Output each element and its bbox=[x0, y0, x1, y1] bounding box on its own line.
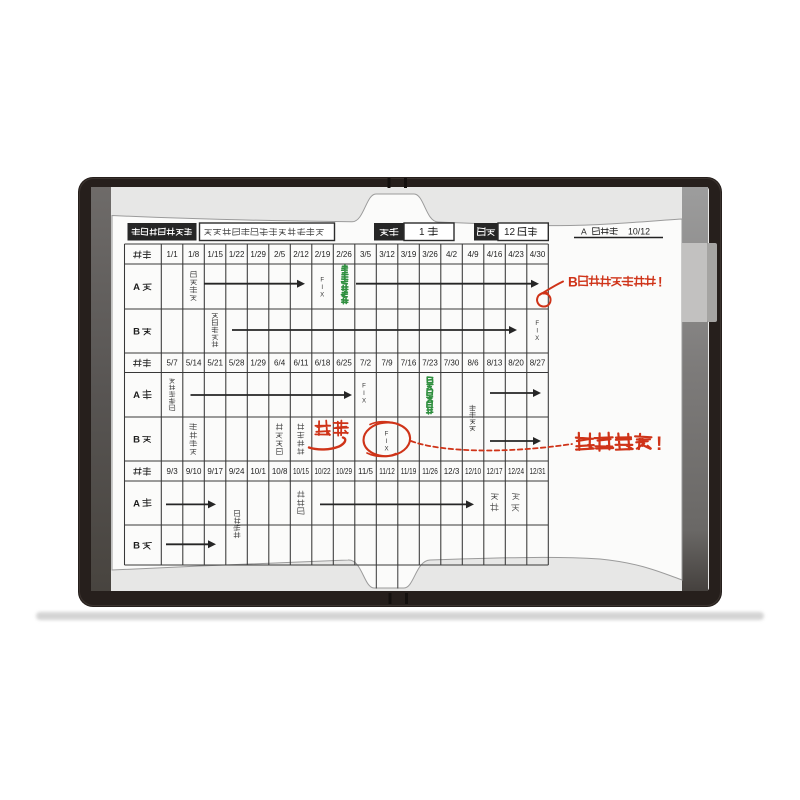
svg-text:10/15: 10/15 bbox=[293, 466, 309, 476]
svg-text:11/5: 11/5 bbox=[358, 467, 374, 476]
svg-text:6/18: 6/18 bbox=[315, 359, 331, 368]
svg-text:I: I bbox=[536, 327, 538, 334]
svg-text:2/12: 2/12 bbox=[293, 250, 309, 259]
svg-text:11/19: 11/19 bbox=[401, 466, 417, 476]
svg-text:6/4: 6/4 bbox=[274, 359, 286, 368]
svg-text:7/30: 7/30 bbox=[444, 359, 460, 368]
svg-text:12: 12 bbox=[504, 227, 516, 238]
svg-text:4/2: 4/2 bbox=[446, 250, 458, 259]
svg-text:A: A bbox=[581, 227, 587, 237]
svg-text:4/16: 4/16 bbox=[487, 250, 503, 259]
svg-text:1/8: 1/8 bbox=[188, 250, 200, 259]
svg-text:1: 1 bbox=[419, 227, 425, 238]
svg-text:3/19: 3/19 bbox=[401, 250, 417, 259]
svg-text:1/29: 1/29 bbox=[250, 359, 266, 368]
svg-text:3/12: 3/12 bbox=[379, 250, 395, 259]
svg-text:4/9: 4/9 bbox=[467, 250, 479, 259]
svg-text:9/10: 9/10 bbox=[186, 467, 202, 476]
svg-text:!: ! bbox=[658, 275, 663, 290]
svg-text:A: A bbox=[133, 390, 140, 401]
svg-text:2/26: 2/26 bbox=[336, 250, 352, 259]
svg-text:12/24: 12/24 bbox=[508, 466, 524, 476]
svg-text:9/24: 9/24 bbox=[229, 467, 245, 476]
svg-text:10/8: 10/8 bbox=[272, 467, 288, 476]
svg-text:12/3: 12/3 bbox=[444, 467, 460, 476]
svg-text:7/16: 7/16 bbox=[401, 359, 417, 368]
svg-text:7/9: 7/9 bbox=[381, 359, 393, 368]
svg-text:10/12: 10/12 bbox=[628, 227, 650, 237]
svg-text:8/6: 8/6 bbox=[467, 359, 479, 368]
svg-text:8/27: 8/27 bbox=[530, 359, 546, 368]
svg-text:5/7: 5/7 bbox=[167, 359, 179, 368]
svg-text:1/29: 1/29 bbox=[250, 250, 266, 259]
svg-text:I: I bbox=[321, 284, 323, 291]
svg-text:X: X bbox=[535, 335, 539, 342]
svg-text:12/10: 12/10 bbox=[465, 466, 481, 476]
svg-text:X: X bbox=[320, 291, 324, 298]
svg-text:F: F bbox=[385, 430, 389, 437]
svg-text:F: F bbox=[320, 276, 324, 283]
svg-text:5/21: 5/21 bbox=[207, 359, 223, 368]
svg-text:7/2: 7/2 bbox=[360, 359, 372, 368]
svg-text:2/19: 2/19 bbox=[315, 250, 331, 259]
svg-text:1/15: 1/15 bbox=[207, 250, 223, 259]
svg-text:12/31: 12/31 bbox=[530, 466, 546, 476]
svg-text:I: I bbox=[386, 438, 388, 445]
svg-text:1/22: 1/22 bbox=[229, 250, 245, 259]
svg-text:10/22: 10/22 bbox=[315, 466, 331, 476]
svg-text:5/14: 5/14 bbox=[186, 359, 202, 368]
svg-text:10/1: 10/1 bbox=[250, 467, 266, 476]
svg-text:6/25: 6/25 bbox=[336, 359, 352, 368]
svg-text:B: B bbox=[133, 434, 140, 445]
svg-text:3/26: 3/26 bbox=[422, 250, 438, 259]
svg-text:X: X bbox=[362, 397, 366, 404]
svg-text:B: B bbox=[133, 326, 140, 337]
svg-text:F: F bbox=[362, 382, 366, 389]
svg-text:!: ! bbox=[656, 434, 662, 455]
svg-text:F: F bbox=[535, 320, 539, 327]
svg-text:B: B bbox=[568, 275, 578, 290]
svg-text:6/11: 6/11 bbox=[294, 359, 310, 368]
svg-text:2/5: 2/5 bbox=[274, 250, 286, 259]
svg-text:A: A bbox=[133, 498, 140, 509]
svg-text:X: X bbox=[384, 445, 388, 452]
svg-text:5/28: 5/28 bbox=[229, 359, 245, 368]
svg-text:I: I bbox=[363, 390, 365, 397]
svg-text:B: B bbox=[133, 540, 140, 551]
svg-text:4/30: 4/30 bbox=[530, 250, 546, 259]
svg-text:A: A bbox=[133, 282, 140, 293]
svg-text:8/13: 8/13 bbox=[487, 359, 503, 368]
svg-text:3/5: 3/5 bbox=[360, 250, 372, 259]
svg-text:12/17: 12/17 bbox=[487, 466, 503, 476]
svg-text:9/3: 9/3 bbox=[167, 467, 179, 476]
svg-text:10/29: 10/29 bbox=[336, 466, 352, 476]
svg-text:8/20: 8/20 bbox=[508, 359, 524, 368]
svg-text:11/26: 11/26 bbox=[422, 466, 438, 476]
svg-text:9/17: 9/17 bbox=[207, 467, 223, 476]
svg-text:11/12: 11/12 bbox=[379, 466, 395, 476]
svg-text:7/23: 7/23 bbox=[422, 359, 438, 368]
svg-text:4/23: 4/23 bbox=[508, 250, 524, 259]
svg-text:1/1: 1/1 bbox=[167, 250, 179, 259]
